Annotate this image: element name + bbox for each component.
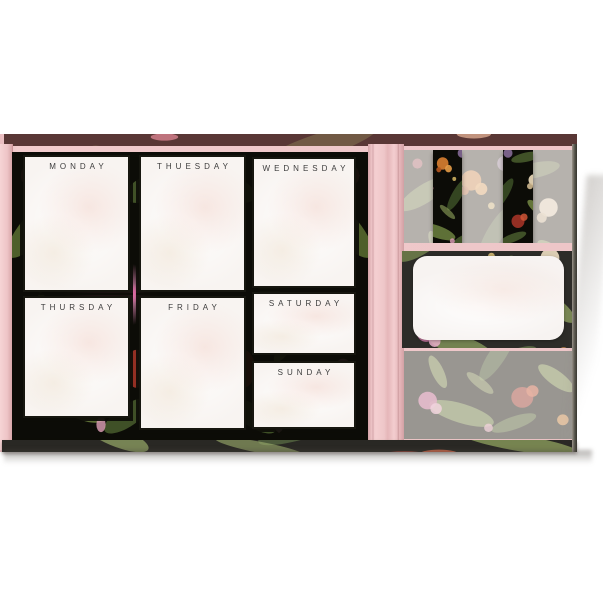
notepad-monday: MONDAY [23,155,130,292]
notepad-thuesday: THUESDAY [139,155,246,292]
notepad-wednesday: WEDNESDAY [252,157,356,288]
notepad-label: FRIDAY [141,303,244,312]
cover-top-edge [4,134,577,146]
notepaper-panel [404,351,573,439]
floral-pattern [4,134,577,146]
product-photo-scene: MONDAY THUESDAY WEDNESDAY THURSDAY FRIDA… [0,0,603,603]
sticky-notes-panel [402,251,574,348]
floral-pattern [404,150,572,243]
notepad-label: THUESDAY [141,162,244,171]
page-markers-panel [404,150,572,243]
notepad-label: SUNDAY [254,368,354,377]
floral-pattern [503,150,533,243]
weekly-planner-page: MONDAY THUESDAY WEDNESDAY THURSDAY FRIDA… [12,152,368,445]
notepad-sunday: SUNDAY [252,361,356,429]
notepad-friday: FRIDAY [139,296,246,430]
notepad-label: SATURDAY [254,299,354,308]
notepad-label: THURSDAY [25,303,128,312]
sticky-note-pad [413,256,564,340]
notepad-label: MONDAY [25,162,128,171]
floral-pattern [433,150,462,243]
bookmark-strip [433,150,462,243]
bottom-drop-shadow [4,450,592,464]
center-spine [368,144,404,452]
notepad-thursday: THURSDAY [23,296,130,418]
planner-board: MONDAY THUESDAY WEDNESDAY THURSDAY FRIDA… [0,134,577,452]
floral-pattern [404,351,573,439]
bookmark-strip [503,150,533,243]
notepad-saturday: SATURDAY [252,292,356,355]
notepad-label: WEDNESDAY [254,164,354,173]
